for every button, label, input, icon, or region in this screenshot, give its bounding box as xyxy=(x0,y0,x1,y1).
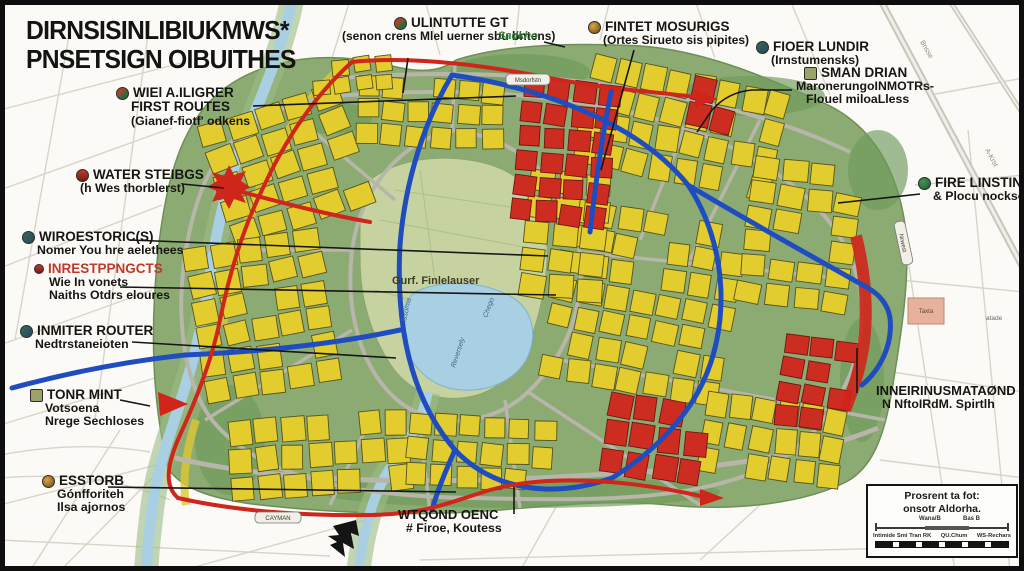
city-block xyxy=(538,354,563,379)
city-block xyxy=(741,254,765,277)
city-block xyxy=(768,456,790,482)
city-block xyxy=(281,416,306,442)
city-block xyxy=(692,246,717,271)
city-block xyxy=(643,211,668,236)
city-block xyxy=(361,438,386,463)
city-block xyxy=(629,422,656,449)
city-block xyxy=(798,432,821,458)
city-block xyxy=(810,337,834,358)
city-block xyxy=(568,130,591,152)
legend-title-line2: onsotr Aldorha. xyxy=(868,503,1016,516)
legend-item: QU.Chum xyxy=(941,533,968,539)
city-block xyxy=(309,442,333,467)
city-block xyxy=(799,407,824,430)
city-block xyxy=(229,449,253,474)
scale-tick-label: Bas B xyxy=(963,516,980,522)
city-block xyxy=(724,423,746,450)
city-block xyxy=(233,372,259,398)
city-block xyxy=(182,246,209,272)
city-block xyxy=(768,259,795,282)
city-block xyxy=(241,264,268,287)
legend-items: Intimide Smi Tran RK QU.Chum WS-Rechars xyxy=(873,533,1011,539)
city-block xyxy=(539,177,562,198)
city-block xyxy=(482,129,504,149)
city-block xyxy=(829,241,856,265)
city-block xyxy=(626,315,651,340)
city-block xyxy=(356,123,378,143)
city-block xyxy=(337,469,360,493)
city-block xyxy=(599,448,623,474)
city-block xyxy=(548,249,573,273)
city-block xyxy=(806,361,830,383)
city-block xyxy=(567,359,591,384)
city-block xyxy=(311,470,335,496)
scale-segment xyxy=(925,526,969,530)
city-block xyxy=(604,419,629,446)
city-block xyxy=(541,153,564,174)
city-block xyxy=(381,101,405,122)
city-block xyxy=(278,310,304,336)
city-block xyxy=(780,356,805,379)
legend-box: Prosrent ta fot: onsotr Aldorha. Wana/B … xyxy=(866,484,1018,558)
legend-scale: Wana/B Bas B xyxy=(875,516,1009,531)
city-block xyxy=(258,474,283,500)
city-block xyxy=(643,372,669,397)
city-block xyxy=(784,334,809,355)
city-block xyxy=(536,200,558,222)
city-block xyxy=(677,459,701,486)
city-block xyxy=(679,324,705,348)
city-block xyxy=(609,259,634,284)
city-block xyxy=(821,291,848,315)
city-block xyxy=(544,128,564,148)
park-label: Gurf. Finlelauser xyxy=(392,275,480,287)
city-block xyxy=(604,285,630,312)
city-block xyxy=(307,415,330,441)
city-block xyxy=(509,419,529,439)
city-block xyxy=(485,418,505,438)
city-block xyxy=(655,125,680,153)
legend-item: WS-Rechars xyxy=(977,533,1011,539)
city-block xyxy=(558,204,582,227)
city-block xyxy=(615,367,641,394)
city-block xyxy=(532,447,553,470)
city-block xyxy=(794,460,816,484)
city-block xyxy=(823,408,847,436)
city-block xyxy=(607,392,634,420)
city-block xyxy=(618,206,644,232)
city-block xyxy=(673,350,700,378)
city-block xyxy=(565,154,589,178)
city-block xyxy=(704,137,729,164)
city-block xyxy=(547,303,572,328)
city-block xyxy=(745,454,769,481)
city-block xyxy=(406,436,429,460)
city-block xyxy=(682,299,708,324)
city-block xyxy=(661,269,687,294)
city-block xyxy=(699,164,723,191)
city-block xyxy=(777,184,805,210)
city-block xyxy=(358,410,381,435)
legend-title-line1: Prosrent ta fot: xyxy=(868,490,1016,503)
city-block xyxy=(282,445,303,469)
city-block xyxy=(543,103,567,126)
map-frame: Msdorfstn CAYMAN Nrwest Bnsse A-Krst Tax… xyxy=(0,0,1024,571)
city-block xyxy=(684,431,708,457)
city-block xyxy=(513,174,537,197)
city-block xyxy=(574,307,599,333)
city-block xyxy=(729,394,752,420)
city-block xyxy=(520,247,545,272)
city-block xyxy=(253,417,278,443)
city-block xyxy=(316,358,341,382)
city-block xyxy=(456,129,476,148)
city-block xyxy=(612,233,638,258)
city-block xyxy=(292,228,320,253)
city-block xyxy=(655,295,681,320)
city-block xyxy=(408,102,428,122)
city-block xyxy=(519,125,540,146)
city-block xyxy=(667,243,690,267)
city-block xyxy=(204,378,230,404)
city-block xyxy=(515,150,537,171)
city-block xyxy=(482,105,503,125)
city-block xyxy=(731,141,755,167)
city-block xyxy=(459,415,480,436)
city-block xyxy=(188,271,217,299)
city-block xyxy=(773,209,802,234)
city-block xyxy=(748,426,773,453)
city-block xyxy=(764,283,789,307)
city-block xyxy=(306,306,332,330)
city-block xyxy=(687,272,711,298)
city-block xyxy=(334,441,357,464)
map-note: atade xyxy=(986,315,1003,322)
city-block xyxy=(810,163,835,186)
city-block xyxy=(252,315,279,341)
city-block xyxy=(284,473,308,498)
city-block xyxy=(255,445,279,472)
city-block xyxy=(752,397,777,423)
city-block xyxy=(796,262,823,284)
legend-item: Intimide Smi Tran RK xyxy=(873,533,931,539)
city-block xyxy=(577,279,603,303)
city-block xyxy=(376,74,393,90)
city-block xyxy=(801,384,826,406)
city-block xyxy=(774,404,798,426)
city-block xyxy=(652,454,679,482)
city-block xyxy=(775,429,798,456)
city-block xyxy=(353,55,371,72)
city-block xyxy=(385,410,406,435)
city-block xyxy=(749,180,776,204)
city-block xyxy=(633,395,657,422)
city-block xyxy=(651,321,678,347)
city-block xyxy=(287,363,314,389)
city-block xyxy=(523,220,549,244)
city-block xyxy=(375,55,393,73)
city-block xyxy=(380,123,402,146)
city-block xyxy=(831,216,858,238)
scale-tick-label: Wana/B xyxy=(919,516,941,522)
city-block xyxy=(301,281,328,308)
city-block xyxy=(753,156,780,181)
city-block xyxy=(563,180,583,200)
city-block xyxy=(630,290,656,315)
city-block xyxy=(640,63,667,93)
city-block xyxy=(430,127,451,149)
city-block xyxy=(260,369,286,395)
city-block xyxy=(807,189,833,213)
city-block xyxy=(578,252,604,277)
city-block xyxy=(819,436,844,464)
city-block xyxy=(535,421,557,441)
city-block xyxy=(621,342,648,370)
city-block xyxy=(599,310,625,336)
city-block xyxy=(596,337,622,363)
city-block xyxy=(794,287,819,309)
city-block xyxy=(520,101,542,123)
city-block xyxy=(705,391,729,418)
city-block xyxy=(228,420,253,447)
city-block xyxy=(457,104,480,125)
city-block xyxy=(567,332,593,359)
scale-bar xyxy=(875,541,1009,548)
city-block xyxy=(356,75,373,91)
road-label: Msdorfstn xyxy=(515,78,541,84)
city-block xyxy=(480,443,504,467)
city-block xyxy=(783,159,810,182)
city-block xyxy=(592,364,618,391)
city-block xyxy=(406,462,426,485)
city-block xyxy=(507,443,529,464)
city-block xyxy=(776,381,801,404)
city-block xyxy=(510,198,532,220)
city-block xyxy=(191,299,219,327)
pink-building-label: Taxta xyxy=(919,309,934,315)
city-block xyxy=(817,464,840,490)
road-label: CAYMAN xyxy=(265,516,290,522)
